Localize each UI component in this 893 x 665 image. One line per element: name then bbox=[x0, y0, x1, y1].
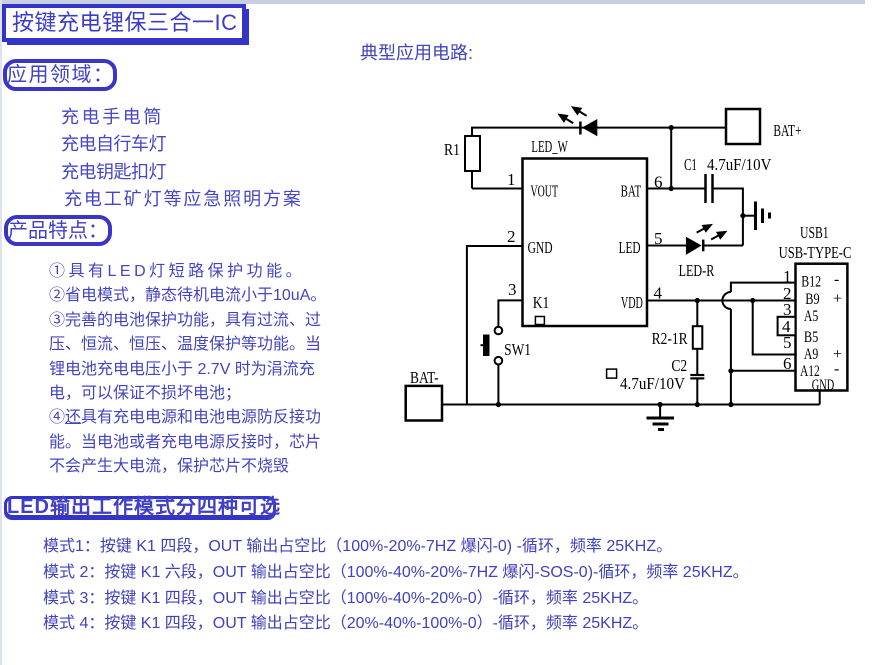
svg-text:BAT-: BAT- bbox=[410, 368, 439, 387]
svg-text:4.7uF/10V: 4.7uF/10V bbox=[620, 374, 686, 393]
svg-text:LED: LED bbox=[619, 238, 641, 257]
svg-text:LED-R: LED-R bbox=[679, 261, 715, 280]
svg-text:GND: GND bbox=[528, 238, 553, 257]
svg-text:R1: R1 bbox=[444, 140, 460, 159]
svg-text:4.7uF/10V: 4.7uF/10V bbox=[707, 155, 772, 174]
svg-text:+: + bbox=[833, 291, 842, 308]
svg-text:1: 1 bbox=[507, 170, 516, 189]
svg-text:C2: C2 bbox=[671, 356, 687, 375]
svg-text:USB-TYPE-C: USB-TYPE-C bbox=[779, 243, 852, 262]
svg-text:3: 3 bbox=[508, 280, 517, 299]
svg-text:LED_W: LED_W bbox=[531, 137, 568, 156]
svg-text:VDD: VDD bbox=[621, 293, 643, 312]
svg-text:USB1: USB1 bbox=[800, 223, 829, 242]
svg-text:BAT+: BAT+ bbox=[773, 121, 801, 140]
svg-text:B12: B12 bbox=[801, 274, 821, 291]
svg-text:5: 5 bbox=[783, 333, 792, 352]
svg-text:B9: B9 bbox=[805, 291, 819, 308]
svg-text:SW1: SW1 bbox=[504, 340, 531, 359]
svg-text:A5: A5 bbox=[804, 308, 818, 325]
svg-text:-: - bbox=[834, 361, 839, 378]
svg-text:A9: A9 bbox=[804, 346, 818, 363]
svg-text:6: 6 bbox=[783, 354, 792, 373]
svg-text:GND: GND bbox=[812, 377, 834, 394]
svg-text:-: - bbox=[834, 271, 839, 288]
svg-text:2: 2 bbox=[507, 227, 516, 246]
svg-text:BAT: BAT bbox=[621, 182, 642, 201]
svg-text:K1: K1 bbox=[533, 293, 550, 312]
svg-text:R2-1R: R2-1R bbox=[652, 329, 689, 348]
svg-text:C1: C1 bbox=[684, 155, 697, 174]
svg-text:B5: B5 bbox=[804, 329, 818, 346]
svg-text:VOUT: VOUT bbox=[531, 182, 559, 201]
